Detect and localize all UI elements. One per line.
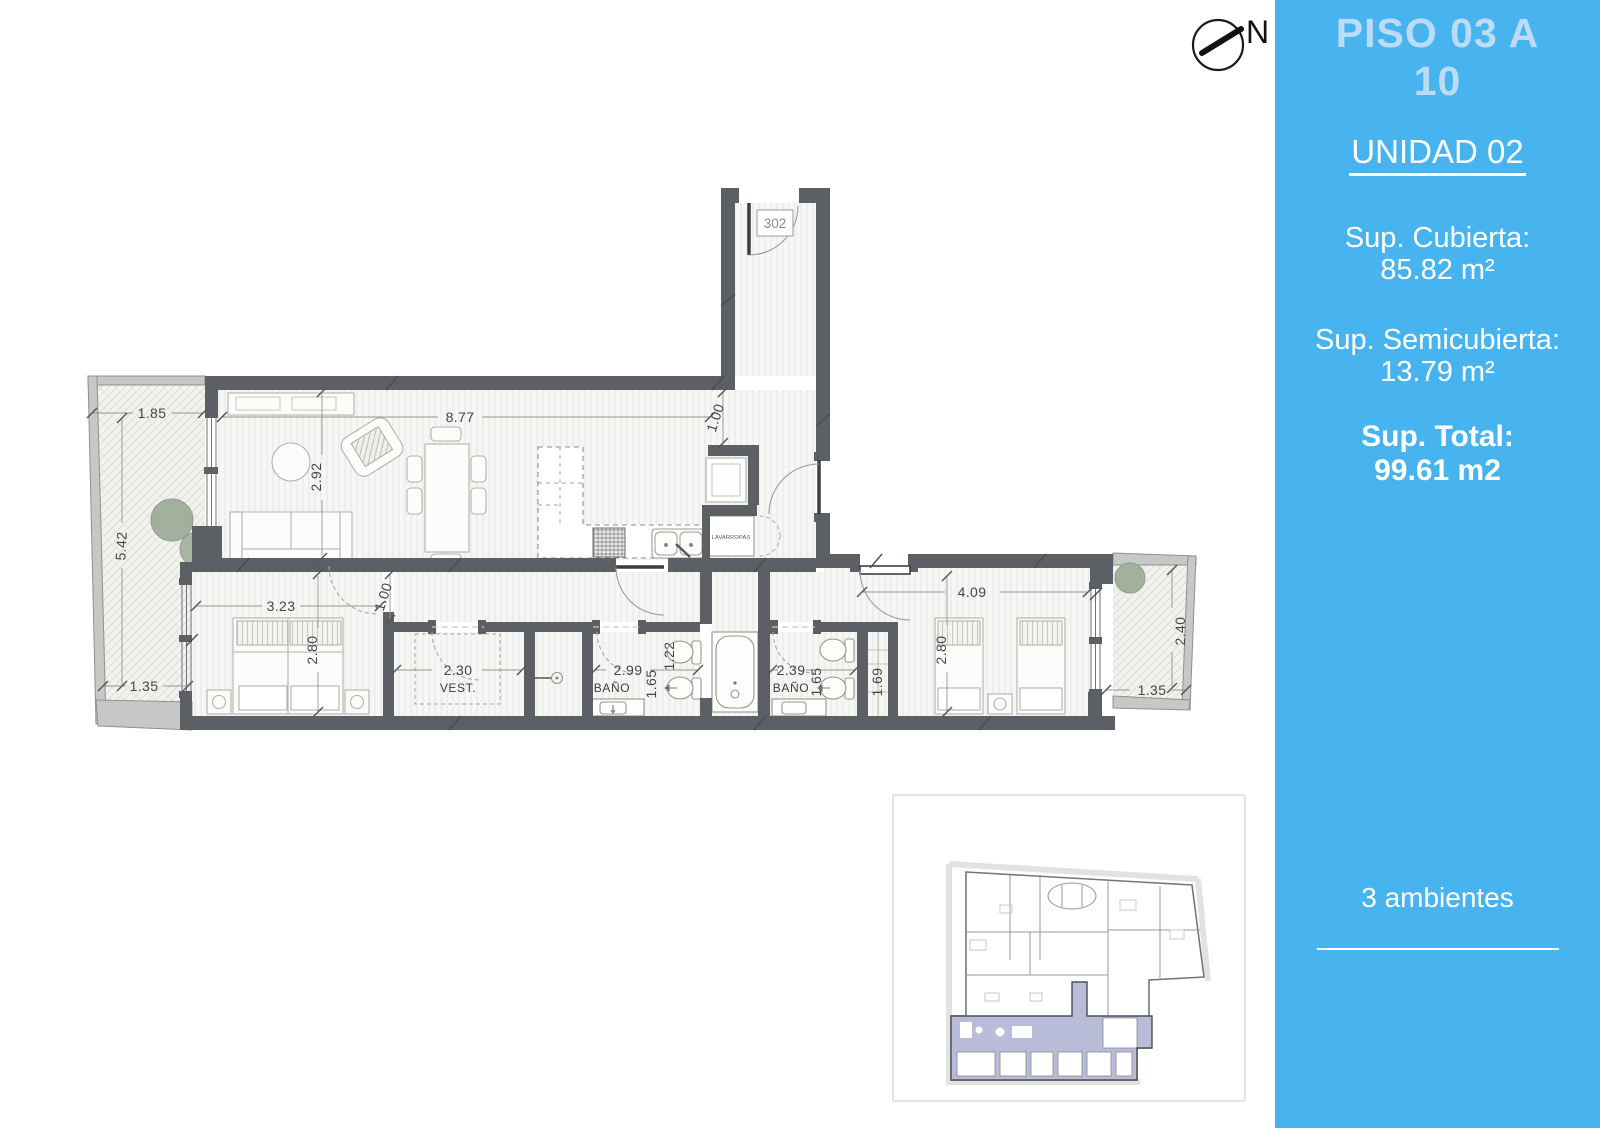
semicovered-area-value: 13.79 m² [1275, 356, 1600, 388]
dim-living-width: 8.77 [446, 409, 475, 425]
bath1-label: BAÑO [594, 681, 630, 695]
info-sidebar: PISO 03 A 10 UNIDAD 02 Sup. Cubierta: 85… [1275, 0, 1600, 1128]
total-area-value: 99.61 m2 [1275, 454, 1600, 488]
rooms-count: 3 ambientes [1275, 882, 1600, 914]
covered-area: Sup. Cubierta: 85.82 m² [1275, 222, 1600, 287]
semicovered-area-label: Sup. Semicubierta: [1275, 324, 1600, 356]
dim-balcony-right-side: 2.40 [1172, 617, 1188, 646]
dim-bedroom1-depth: 2.80 [304, 636, 320, 665]
dim-bath1-width: 2.99 [614, 662, 643, 678]
dim-bedroom1-width: 3.23 [267, 598, 296, 614]
dim-tub-width: 1.22 [661, 642, 677, 671]
dim-living-depth: 2.92 [308, 463, 324, 492]
laundry-label: LAVARROPAS [712, 535, 751, 541]
dim-closet2-depth: 1.69 [869, 668, 885, 697]
dim-balcony-left-side: 5.42 [112, 531, 129, 561]
floor-title-line1: PISO 03 A [1275, 10, 1600, 58]
floor-title: PISO 03 A 10 [1275, 10, 1600, 106]
north-label: N [1246, 14, 1269, 50]
dim-vest-width: 2.30 [444, 662, 473, 678]
dim-bath1-depth: 1.65 [643, 670, 659, 699]
covered-area-label: Sup. Cubierta: [1275, 222, 1600, 254]
key-plan [893, 795, 1245, 1101]
dim-bedroom2-width: 4.09 [958, 584, 987, 600]
vest-label: VEST. [440, 681, 476, 695]
dim-bath2-depth: 1.65 [808, 668, 824, 697]
entry-unit-tag: 302 [757, 210, 793, 236]
dim-bath2-width: 2.39 [777, 662, 806, 678]
total-area: Sup. Total: 99.61 m2 [1275, 420, 1600, 487]
dim-balcony-left-top: 1.85 [138, 405, 167, 421]
north-arrow-icon: N [1193, 14, 1269, 70]
entry-unit-number: 302 [764, 216, 787, 231]
bath2-label: BAÑO [773, 681, 809, 695]
floor-plan-drawing: LAVARROPAS [0, 0, 1275, 1131]
floor-title-line2: 10 [1275, 58, 1600, 106]
dim-balcony-right-bottom: 1.35 [1138, 682, 1167, 698]
rooms-count-divider [1317, 948, 1559, 950]
total-area-label: Sup. Total: [1275, 420, 1600, 454]
covered-area-value: 85.82 m² [1275, 254, 1600, 286]
dim-bedroom2-depth: 2.80 [933, 636, 949, 665]
dim-balcony-left-bottom: 1.35 [130, 678, 159, 694]
semicovered-area: Sup. Semicubierta: 13.79 m² [1275, 324, 1600, 389]
unit-heading: UNIDAD 02 [1275, 133, 1600, 171]
